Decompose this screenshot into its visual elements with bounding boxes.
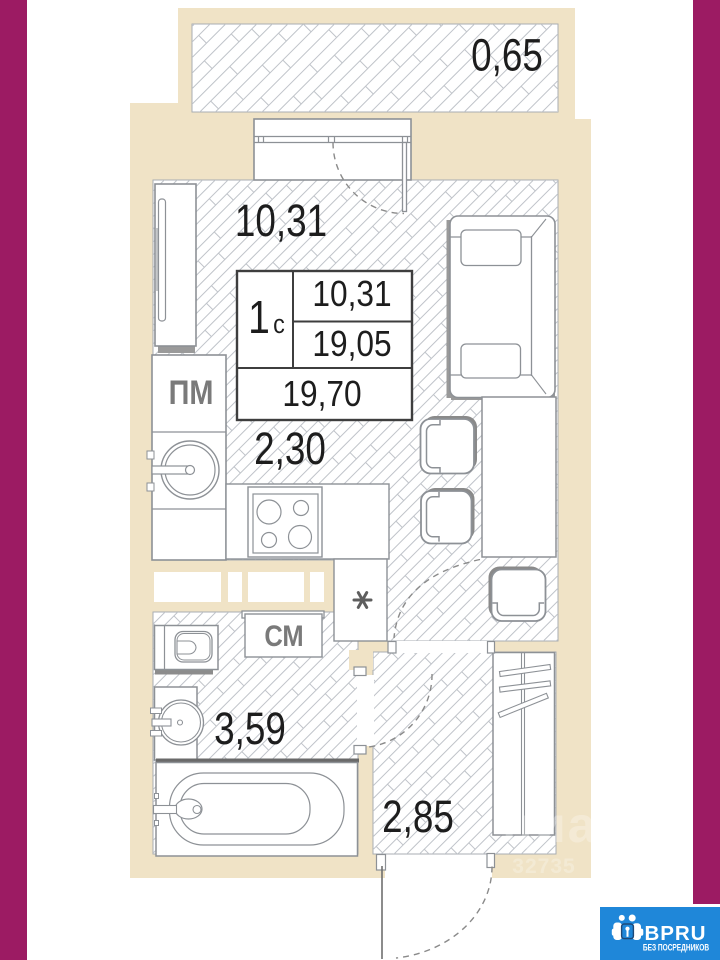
svg-text:БЕЗ ПОСРЕДНИКОВ: БЕЗ ПОСРЕДНИКОВ — [643, 943, 710, 953]
svg-text:32735: 32735 — [512, 855, 575, 878]
svg-text:19,70: 19,70 — [282, 374, 361, 414]
svg-text:СМ: СМ — [264, 619, 303, 652]
svg-text:BPRU: BPRU — [645, 922, 707, 945]
svg-text:1: 1 — [248, 292, 270, 344]
svg-text:10,31: 10,31 — [235, 196, 327, 246]
svg-text:10,31: 10,31 — [312, 274, 391, 314]
svg-text:циан: циан — [502, 797, 629, 853]
svg-text:19,05: 19,05 — [312, 324, 391, 364]
svg-text:2,30: 2,30 — [254, 424, 326, 474]
svg-text:с: с — [273, 311, 285, 339]
svg-text:ПМ: ПМ — [169, 373, 214, 412]
svg-text:0,65: 0,65 — [471, 30, 543, 80]
svg-text:2,85: 2,85 — [382, 792, 454, 842]
svg-text:3,59: 3,59 — [214, 704, 286, 754]
